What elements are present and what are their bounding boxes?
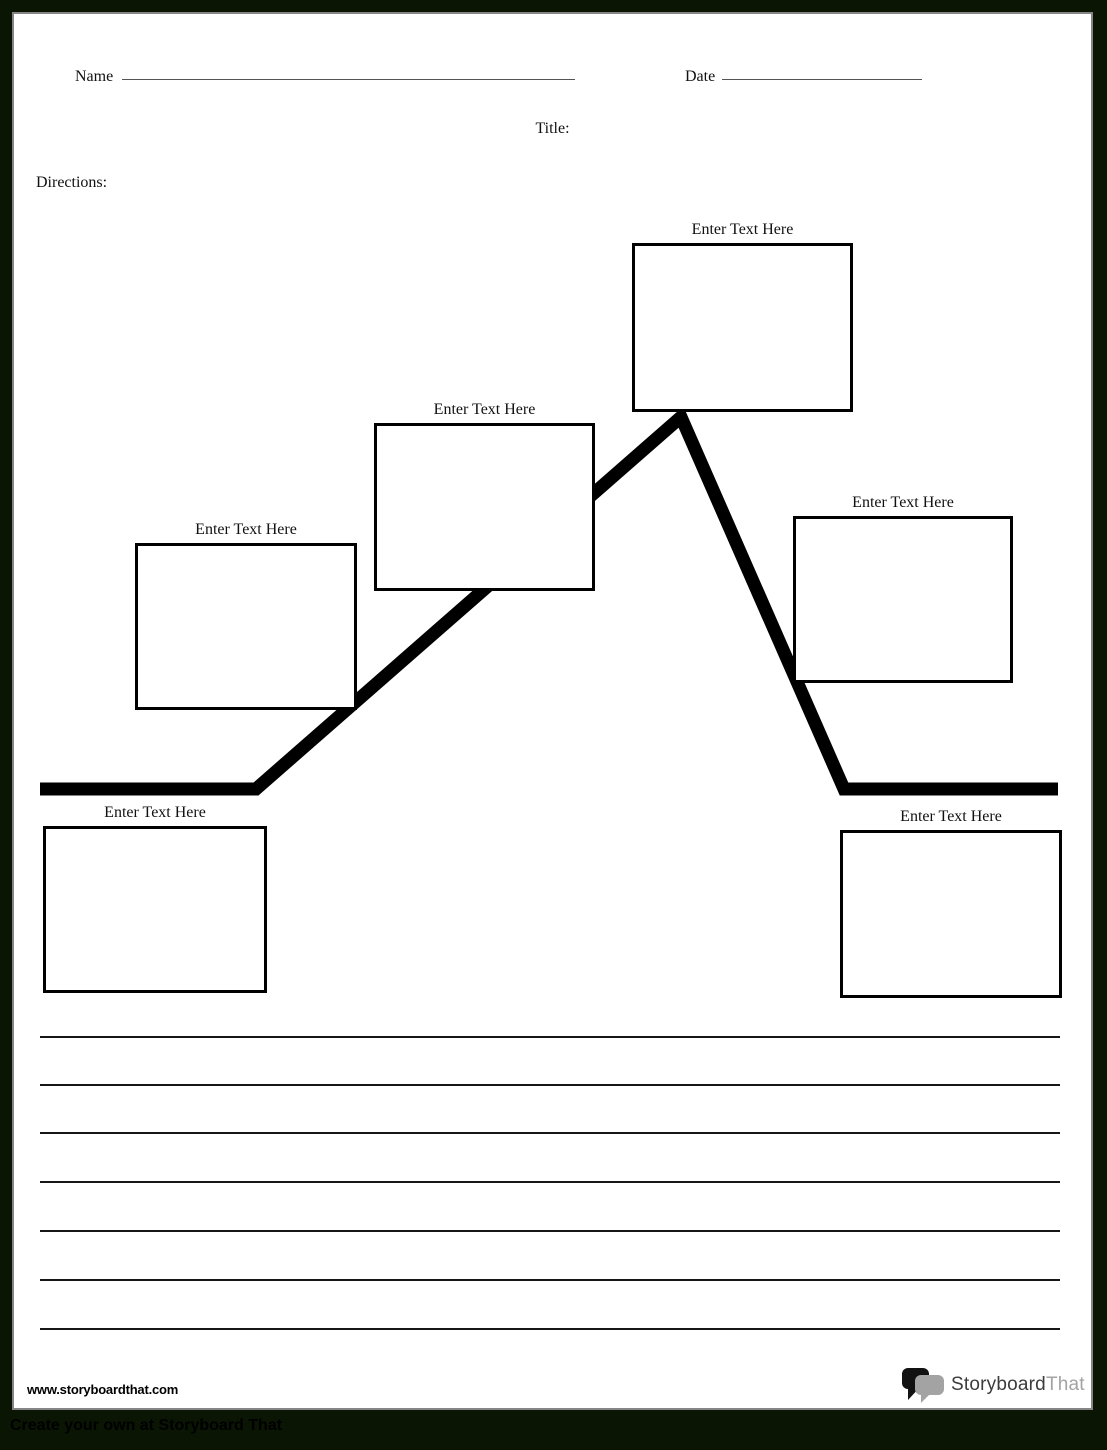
plot-box-falling[interactable]: Enter Text Here bbox=[793, 516, 1013, 683]
logo-text-primary: Storyboard bbox=[951, 1374, 1046, 1396]
writing-line bbox=[40, 1036, 1060, 1038]
create-your-own-tagline: Create your own at Storyboard That bbox=[10, 1417, 282, 1435]
plot-box-label: Enter Text Here bbox=[766, 494, 1040, 512]
writing-line bbox=[40, 1230, 1060, 1232]
writing-line bbox=[40, 1279, 1060, 1281]
plot-arc-line bbox=[14, 14, 1091, 1408]
speech-bubbles-icon bbox=[900, 1365, 946, 1405]
storyboardthat-logo: StoryboardThat bbox=[900, 1364, 1085, 1406]
logo-text-secondary: That bbox=[1046, 1374, 1085, 1396]
plot-box-label: Enter Text Here bbox=[347, 401, 622, 419]
plot-box-label: Enter Text Here bbox=[605, 221, 880, 239]
plot-box-label: Enter Text Here bbox=[108, 521, 384, 539]
plot-box-end[interactable]: Enter Text Here bbox=[840, 830, 1062, 998]
plot-box-rising-lower[interactable]: Enter Text Here bbox=[135, 543, 357, 710]
writing-line bbox=[40, 1084, 1060, 1086]
writing-line bbox=[40, 1181, 1060, 1183]
plot-box-label: Enter Text Here bbox=[16, 804, 294, 822]
plot-box-rising-upper[interactable]: Enter Text Here bbox=[374, 423, 595, 591]
website-url: www.storyboardthat.com bbox=[27, 1382, 178, 1397]
plot-box-label: Enter Text Here bbox=[813, 808, 1089, 826]
plot-box-climax[interactable]: Enter Text Here bbox=[632, 243, 853, 412]
worksheet-page: Name Date Title: Directions: Enter Text … bbox=[12, 12, 1093, 1410]
writing-line bbox=[40, 1328, 1060, 1330]
plot-box-start[interactable]: Enter Text Here bbox=[43, 826, 267, 993]
writing-line bbox=[40, 1132, 1060, 1134]
